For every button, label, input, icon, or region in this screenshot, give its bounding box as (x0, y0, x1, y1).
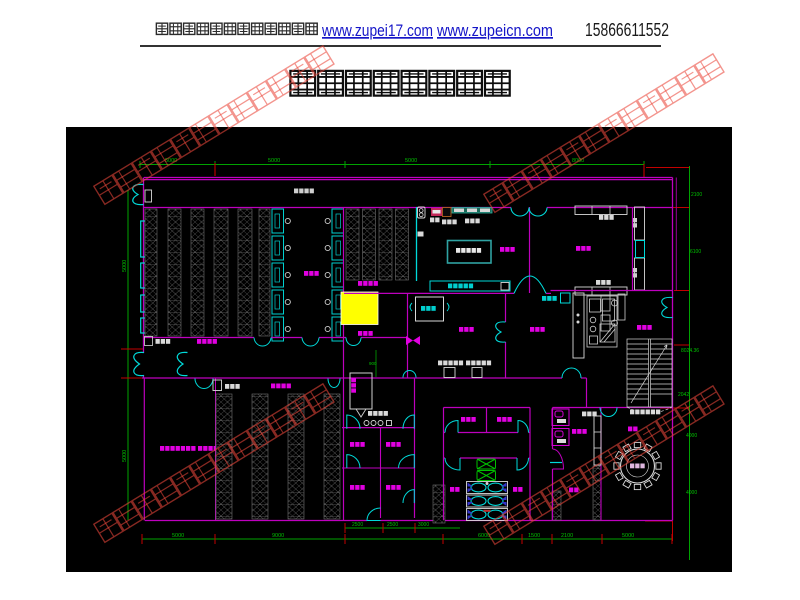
svg-text:9000: 9000 (272, 533, 284, 539)
svg-text:4000: 4000 (686, 433, 697, 439)
svg-text:2042: 2042 (678, 392, 689, 398)
svg-text:www.zupeicn.com: www.zupeicn.com (436, 21, 553, 40)
svg-text:5000: 5000 (405, 158, 417, 164)
svg-text:3000: 3000 (418, 522, 429, 528)
svg-text:2100: 2100 (691, 192, 702, 198)
svg-text:15866611552: 15866611552 (585, 19, 669, 40)
svg-text:5000: 5000 (268, 158, 280, 164)
svg-text:2500: 2500 (352, 522, 363, 528)
svg-text:6100: 6100 (690, 249, 701, 255)
svg-text:2100: 2100 (561, 533, 573, 539)
svg-text:5000: 5000 (172, 533, 184, 539)
svg-text:www.zupei17.com: www.zupei17.com (321, 21, 433, 40)
svg-text:2500: 2500 (387, 522, 398, 528)
svg-text:5000: 5000 (622, 533, 634, 539)
svg-text:4000: 4000 (686, 490, 697, 496)
svg-text:5000: 5000 (122, 450, 128, 462)
svg-text:900: 900 (369, 361, 377, 366)
svg-text:1500: 1500 (528, 533, 540, 539)
svg-text:5000: 5000 (122, 260, 128, 272)
svg-text:8024.36: 8024.36 (681, 348, 699, 354)
